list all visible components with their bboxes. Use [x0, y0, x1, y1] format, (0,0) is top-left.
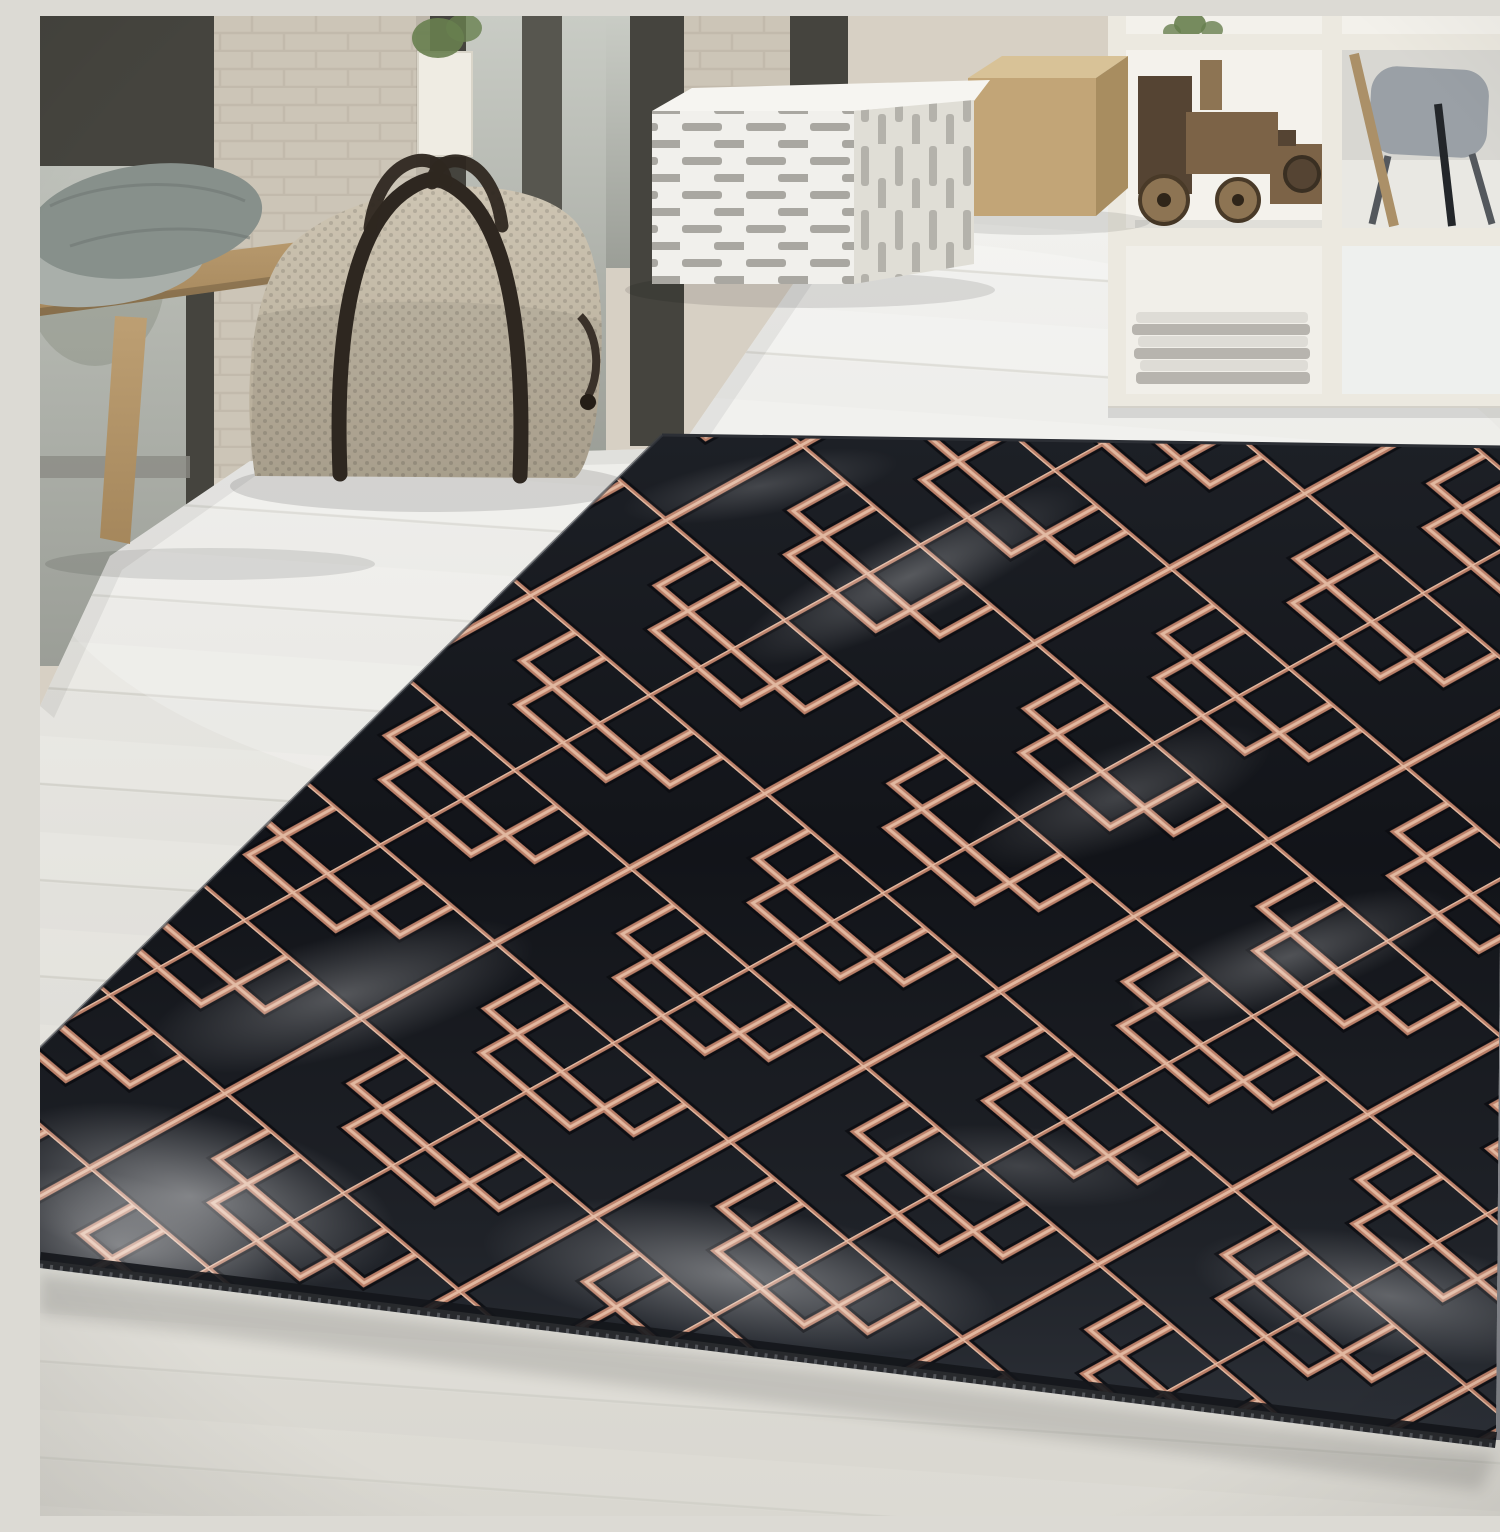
photo-vignette	[40, 16, 1500, 1516]
rug-product-photo	[40, 16, 1500, 1516]
scene-canvas	[40, 16, 1500, 1516]
